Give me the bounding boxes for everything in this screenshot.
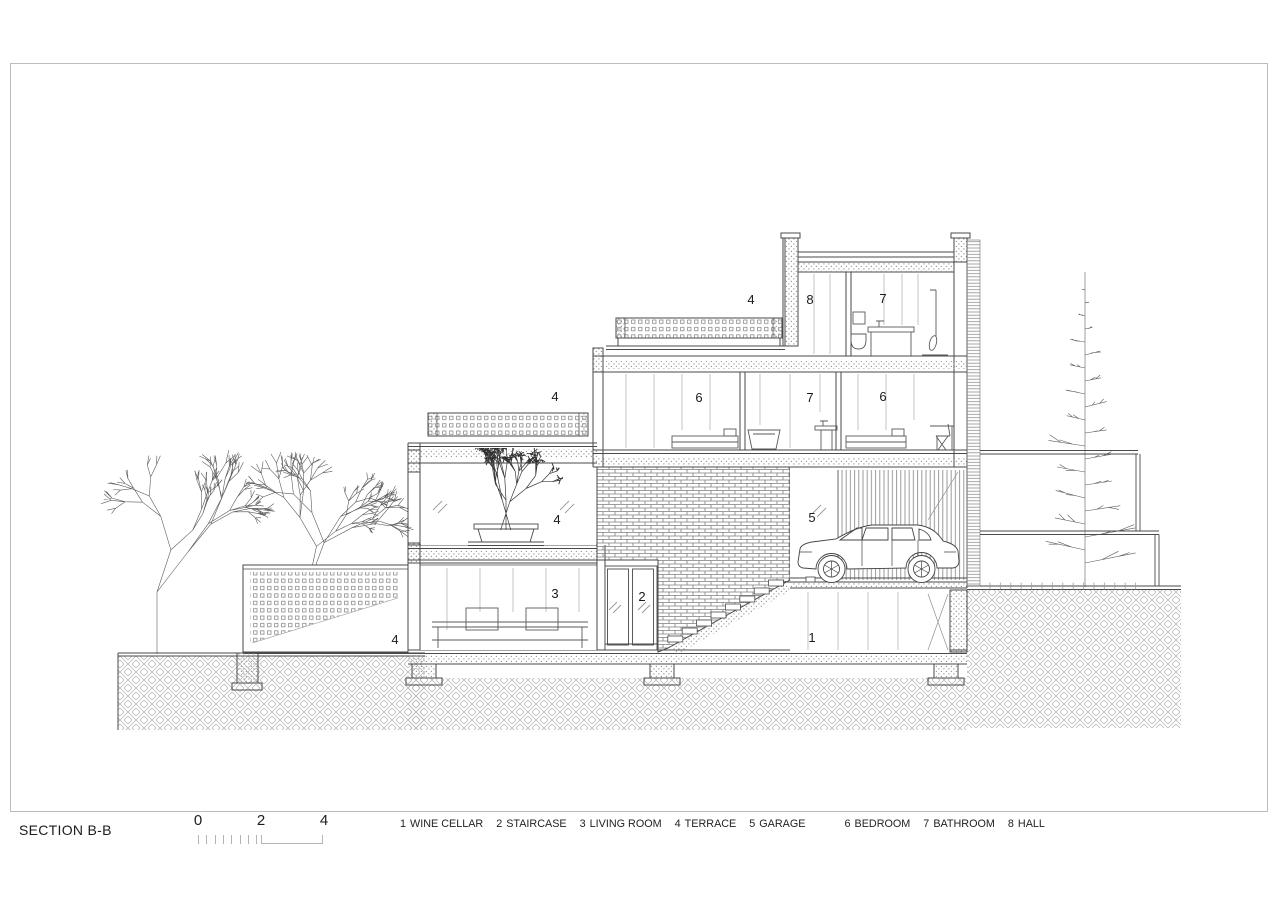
room-legend: 1WINE CELLAR2STAIRCASE3LIVING ROOM4TERRA… — [400, 818, 1058, 830]
bedroom-floor-slab — [593, 450, 967, 467]
roof-terrace-parapet — [616, 318, 782, 346]
legend-number: 8 — [1008, 818, 1014, 830]
legend-label: BATHROOM — [933, 818, 995, 830]
legend-number: 7 — [923, 818, 929, 830]
scale-tick — [248, 835, 249, 844]
legend-item-staircase: 2STAIRCASE — [496, 818, 566, 830]
scale-tick — [223, 835, 224, 844]
legend-item-hall: 8HALL — [1008, 818, 1045, 830]
legend-label: STAIRCASE — [506, 818, 566, 830]
room-label-bedroom-right: 6 — [879, 389, 886, 404]
room-label-terrace-roof: 4 — [747, 292, 754, 307]
legend-number: 4 — [675, 818, 681, 830]
room-label-terrace-mid: 4 — [551, 389, 558, 404]
legend-label: LIVING ROOM — [590, 818, 662, 830]
room-label-staircase: 2 — [638, 589, 645, 604]
legend-item-bathroom: 7BATHROOM — [923, 818, 995, 830]
right-tree — [1046, 272, 1136, 587]
scale-ticks — [150, 812, 380, 852]
room-label-garage: 5 — [808, 510, 815, 525]
legend-number: 5 — [749, 818, 755, 830]
mid-terrace-parapet — [428, 413, 588, 436]
room-label-terrace-garden: 4 — [553, 512, 560, 527]
legend-number: 2 — [496, 818, 502, 830]
room-label-wine-cellar: 1 — [808, 630, 815, 645]
legend-label: GARAGE — [759, 818, 805, 830]
legend-label: TERRACE — [685, 818, 737, 830]
scale-bar: 0 2 4 — [150, 812, 380, 852]
scale-tick — [231, 835, 232, 844]
room-label-terrace-front: 4 — [391, 632, 398, 647]
staircase-glass — [605, 566, 657, 650]
legend-number: 6 — [844, 818, 850, 830]
legend-item-garage: 5GARAGE — [749, 818, 805, 830]
legend-label: HALL — [1018, 818, 1045, 830]
section-title: SECTION B-B — [19, 822, 112, 838]
scale-tick — [198, 835, 199, 844]
legend-label: BEDROOM — [855, 818, 911, 830]
legend-item-terrace: 4TERRACE — [675, 818, 737, 830]
scale-tick — [256, 835, 257, 844]
scale-tick — [240, 835, 241, 844]
room-label-bathroom-upper: 7 — [879, 291, 886, 306]
front-terrace-wall — [243, 565, 408, 652]
room-label-living-room: 3 — [551, 586, 558, 601]
legend-item-living-room: 3LIVING ROOM — [580, 818, 662, 830]
scale-bracket — [261, 835, 323, 844]
scale-tick — [206, 835, 207, 844]
wine-cellar — [790, 590, 967, 652]
room-label-bathroom-mid: 7 — [806, 390, 813, 405]
legend-number: 3 — [580, 818, 586, 830]
legend-item-wine-cellar: 1WINE CELLAR — [400, 818, 483, 830]
drawing-sheet: 4874676453214 SECTION B-B 0 2 4 1WINE CE… — [0, 0, 1280, 905]
garage — [783, 467, 967, 588]
room-label-bedroom-left: 6 — [695, 390, 702, 405]
scale-tick — [215, 835, 216, 844]
room-label-hall: 8 — [806, 292, 813, 307]
legend-number: 1 — [400, 818, 406, 830]
mid-terrace-deck — [408, 413, 597, 463]
living-ceiling-slab — [408, 545, 597, 563]
section-drawing: 4874676453214 — [0, 0, 1280, 905]
legend-label: WINE CELLAR — [410, 818, 483, 830]
legend-item-bedroom: 6BEDROOM — [844, 818, 910, 830]
